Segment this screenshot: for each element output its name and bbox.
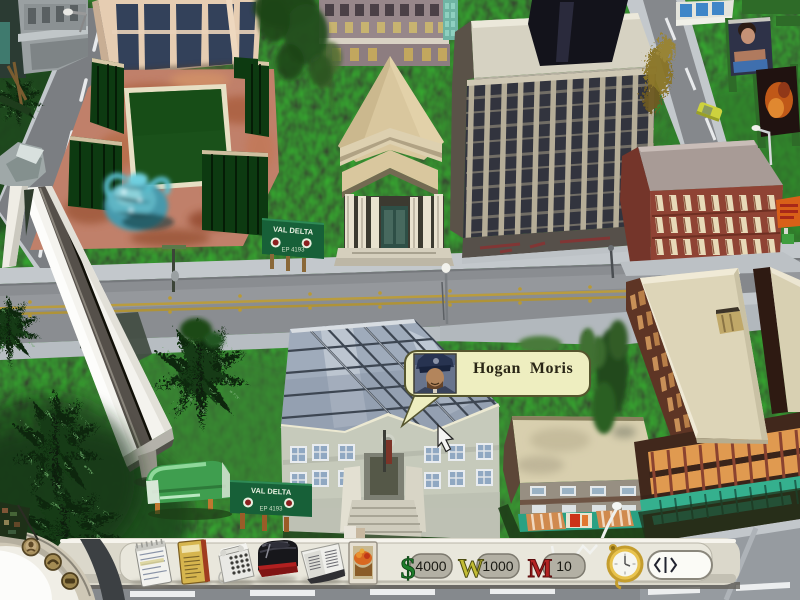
svg-text:4000: 4000	[415, 558, 446, 574]
svg-text:10: 10	[556, 558, 572, 574]
svg-text:1000: 1000	[482, 558, 513, 574]
svg-text:W: W	[458, 554, 484, 583]
svg-text:M: M	[528, 554, 553, 583]
svg-text:EP 4193: EP 4193	[260, 507, 284, 513]
svg-text:EP 4193: EP 4193	[282, 247, 306, 253]
svg-text:Hogan Moris: Hogan Moris	[473, 360, 573, 377]
svg-text:$: $	[401, 552, 416, 585]
